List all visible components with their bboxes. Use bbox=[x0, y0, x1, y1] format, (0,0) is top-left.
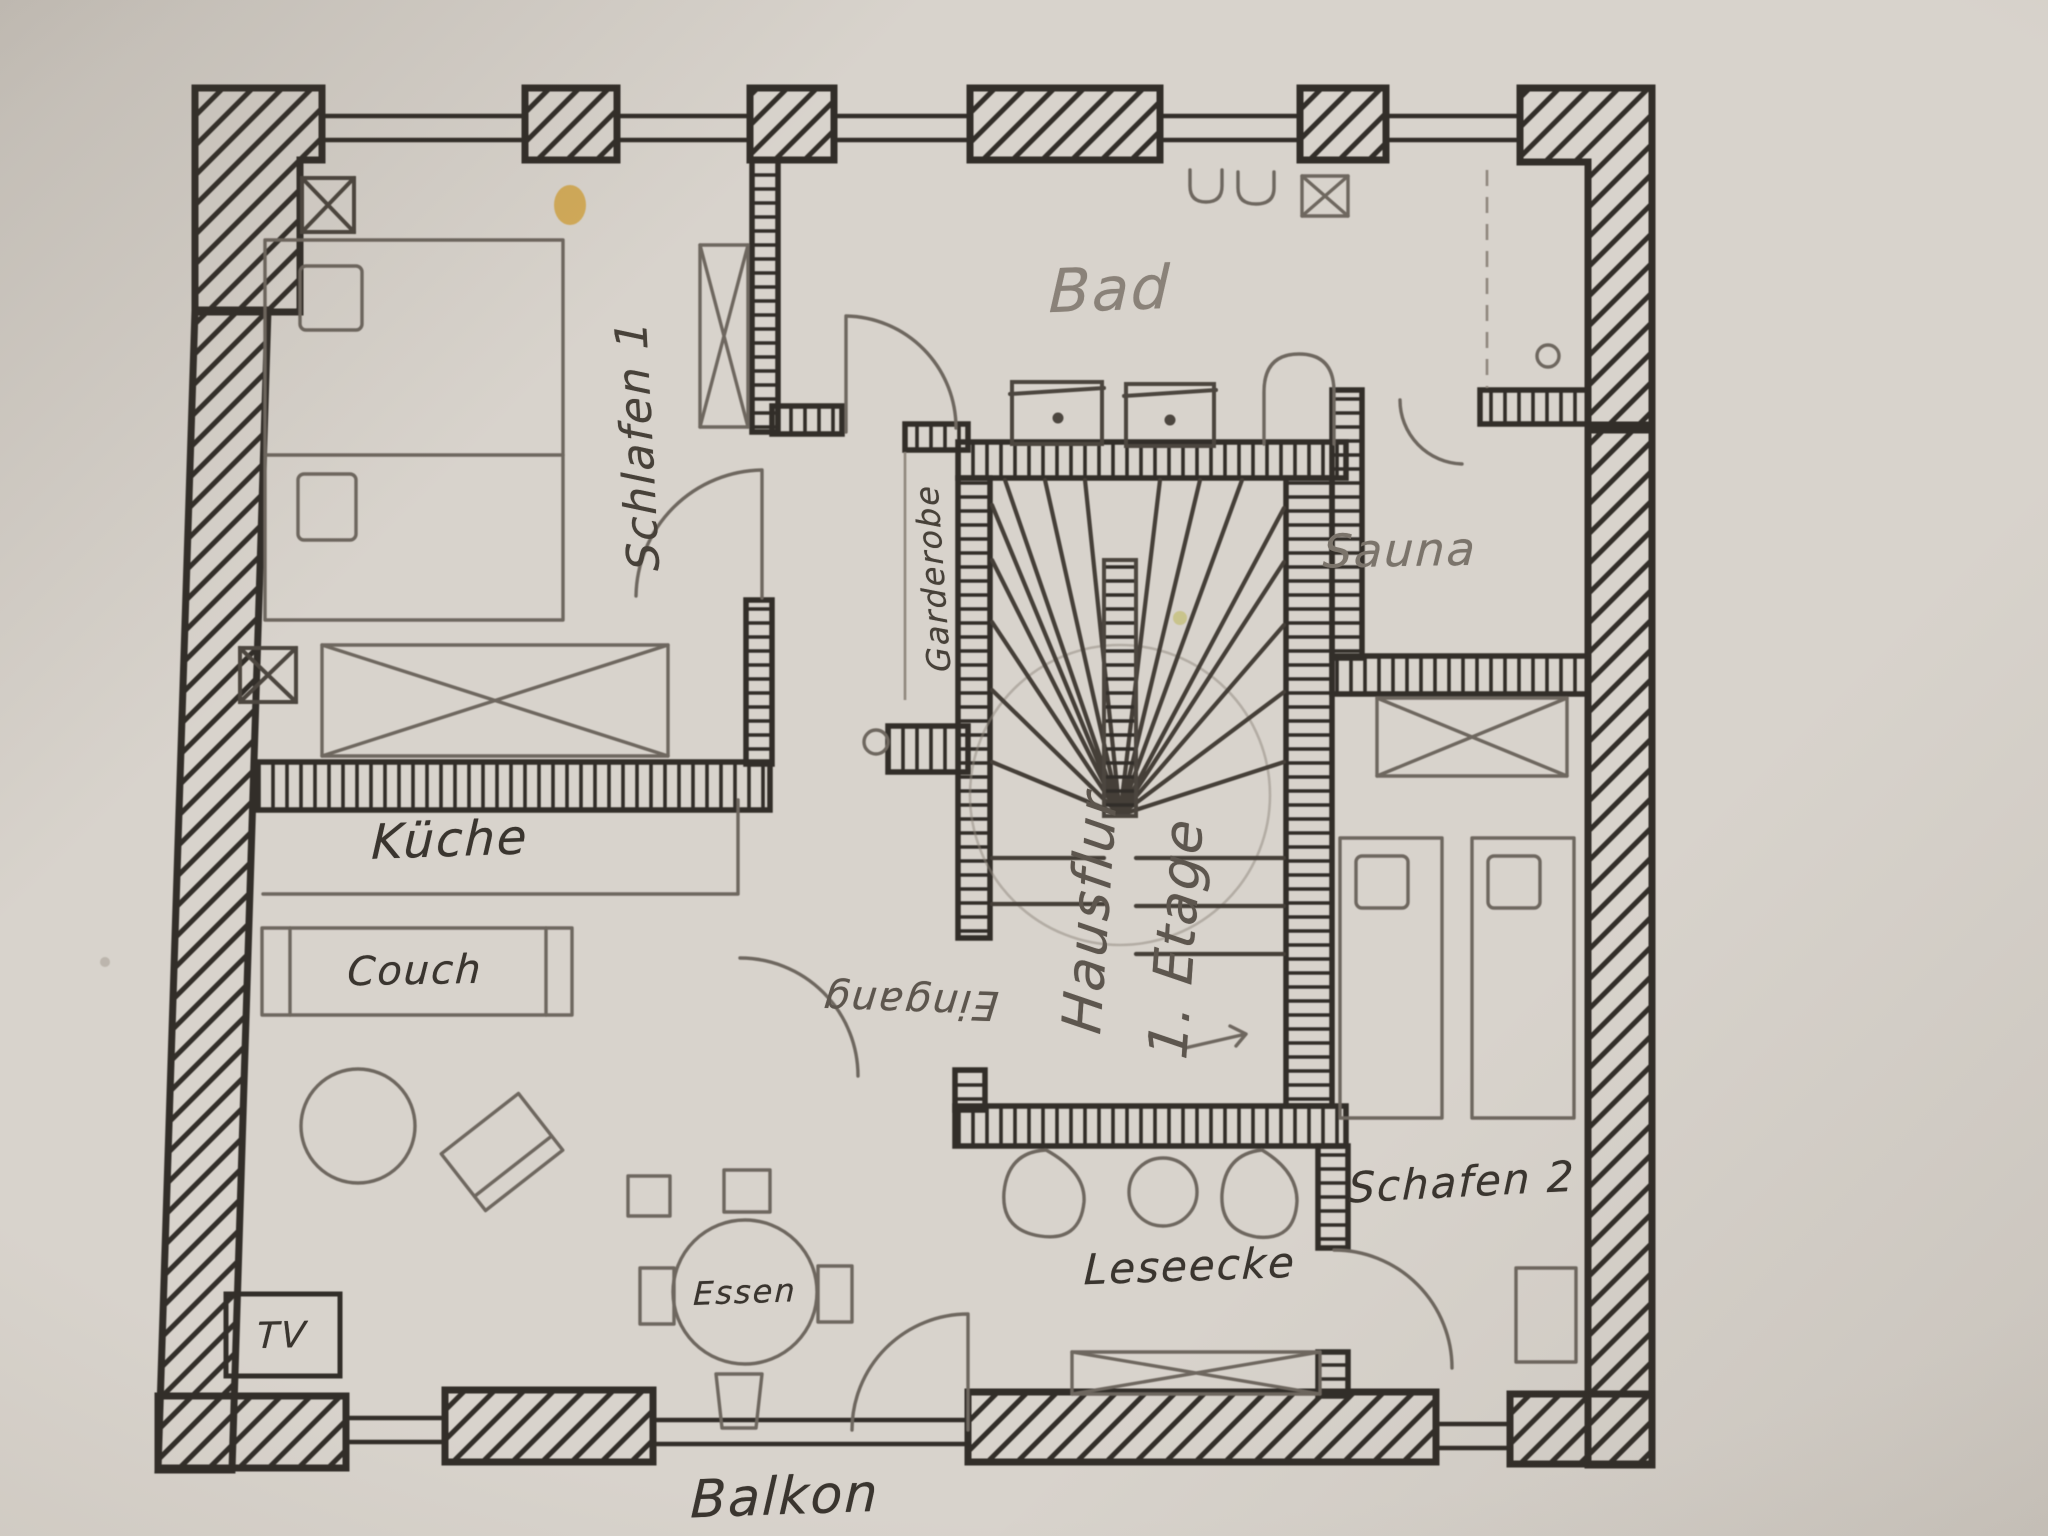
furniture-label-tv: TV bbox=[256, 1315, 309, 1357]
room-label-eingang: Eingang bbox=[819, 976, 1000, 1028]
room-label-schlafen1: Schlafen 1 bbox=[606, 319, 670, 571]
room-label-hausflur: Hausflur bbox=[1050, 787, 1129, 1038]
room-label-schlafen2: Schafen 2 bbox=[1348, 1151, 1576, 1212]
room-label-leseecke: Leseecke bbox=[1083, 1238, 1297, 1294]
room-label-hausflur-etage: 1. Etage bbox=[1136, 814, 1215, 1063]
labels-layer: Schlafen 1 Bad Sauna Garderobe Hausflur … bbox=[0, 0, 2048, 1536]
room-label-bad: Bad bbox=[1048, 253, 1172, 327]
floorplan-photo: Schlafen 1 Bad Sauna Garderobe Hausflur … bbox=[0, 0, 2048, 1536]
furniture-label-essen: Essen bbox=[693, 1271, 798, 1313]
room-label-sauna: Sauna bbox=[1322, 522, 1479, 579]
room-label-kueche: Küche bbox=[371, 809, 530, 871]
room-label-balkon: Balkon bbox=[690, 1464, 881, 1531]
room-label-garderobe: Garderobe bbox=[907, 484, 958, 672]
furniture-label-couch: Couch bbox=[346, 947, 484, 995]
